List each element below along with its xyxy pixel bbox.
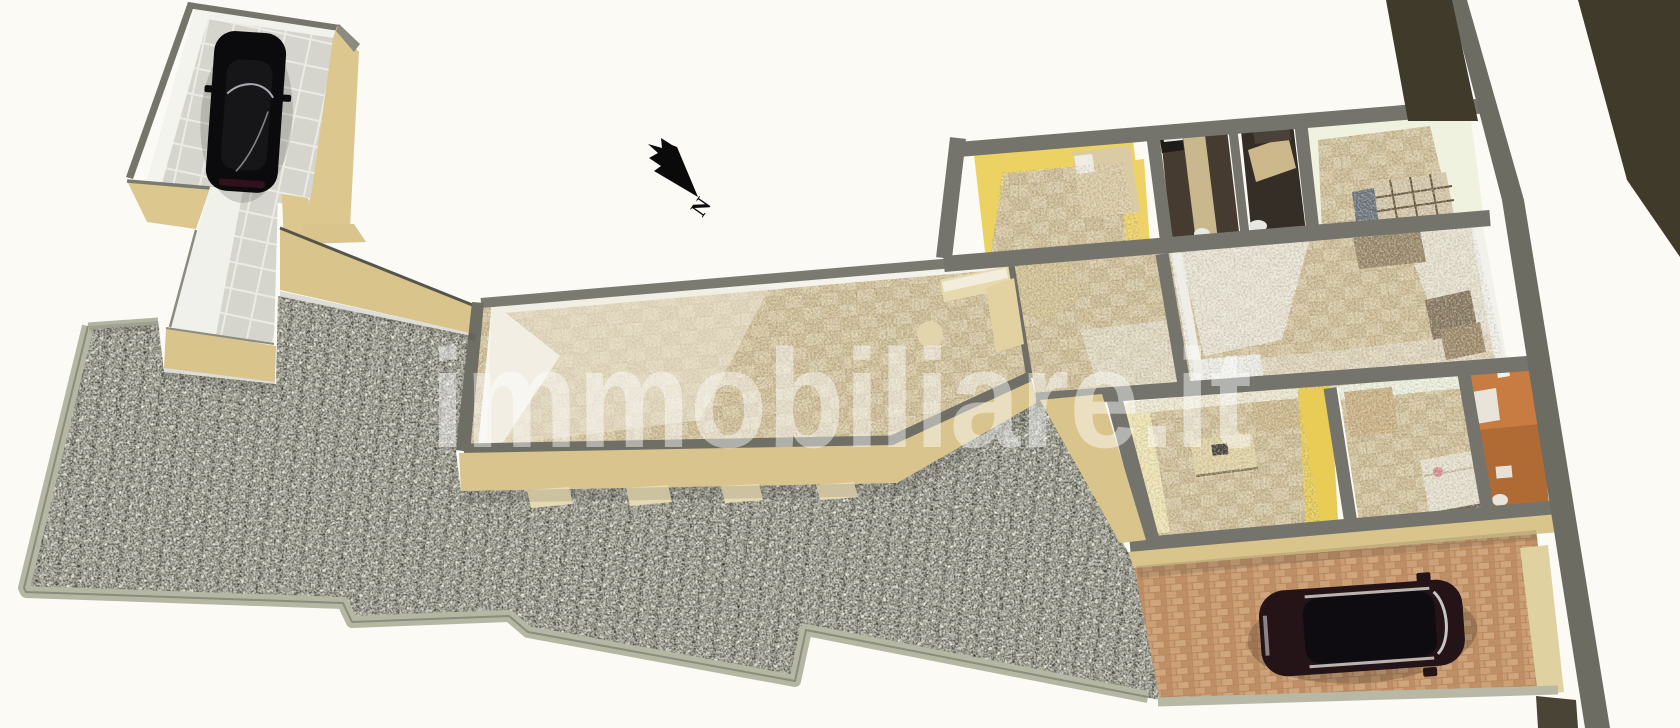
svg-text:immobiliare.it: immobiliare.it xyxy=(430,320,1252,477)
